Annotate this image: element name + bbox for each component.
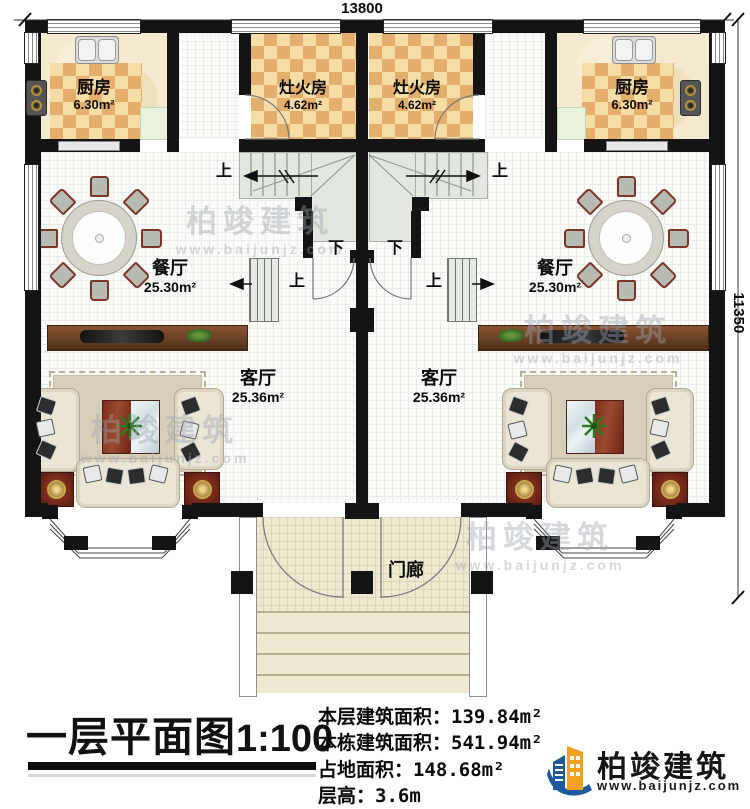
room-area-dining-left: 25.30m² xyxy=(128,280,212,295)
plant-right xyxy=(582,414,606,438)
company-logo-url: www.baijunjz.com xyxy=(597,778,741,793)
stair-down-label: 下 xyxy=(384,241,406,258)
room-label-kitchen-left: 厨房 xyxy=(57,79,131,97)
info-label: 本层建筑面积： xyxy=(318,707,451,728)
room-area-dining-right: 25.30m² xyxy=(513,280,597,295)
plan-title-text: 一层平面图 xyxy=(26,714,236,760)
stair-up-label: 上 xyxy=(213,164,235,181)
room-label-stove-right: 灶火房 xyxy=(376,81,458,98)
stair-up-label: 上 xyxy=(489,164,511,181)
stair-up-label: 上 xyxy=(423,274,445,291)
entry-arrow-right xyxy=(472,279,493,289)
info-land-area: 占地面积：148.68m² xyxy=(318,755,505,782)
room-area-kitchen-left: 6.30m² xyxy=(57,98,131,112)
info-value: 139.84m² xyxy=(451,706,543,728)
entry-arrow-left xyxy=(231,279,252,289)
room-area-kitchen-right: 6.30m² xyxy=(595,98,669,112)
logo-tower-orange xyxy=(567,746,583,790)
room-label-dining-right: 餐厅 xyxy=(515,259,595,278)
info-label: 占地面积： xyxy=(318,760,413,781)
dimension-right-label: 11350 xyxy=(730,278,746,348)
room-area-living-right: 25.36m² xyxy=(397,390,481,405)
info-value: 3.6m xyxy=(375,785,421,807)
info-value: 148.68m² xyxy=(413,759,505,781)
info-building-area: 本栋建筑面积：541.94m² xyxy=(318,728,543,755)
room-label-stove-left: 灶火房 xyxy=(262,81,344,98)
room-area-stove-left: 4.62m² xyxy=(264,99,342,112)
room-label-living-left: 客厅 xyxy=(218,369,298,388)
info-floor-height: 层高：3.6m xyxy=(318,781,421,808)
plan-title: 一层平面图1:100 xyxy=(26,703,333,763)
logo-tower-blue xyxy=(553,755,565,790)
title-underline xyxy=(28,762,316,770)
stair-up-label: 上 xyxy=(286,274,308,291)
stair-treads xyxy=(251,153,473,196)
title-underline-shadow xyxy=(28,774,316,777)
info-floor-area: 本层建筑面积：139.84m² xyxy=(318,702,543,729)
stair-down-label: 下 xyxy=(325,241,347,258)
info-label: 层高： xyxy=(318,786,375,807)
floor-plan-page: 柏竣建筑 www.baijunjz.com 柏竣建筑 www.baijunjz.… xyxy=(0,0,750,809)
room-label-dining-left: 餐厅 xyxy=(130,259,210,278)
info-label: 本栋建筑面积： xyxy=(318,733,451,754)
bay-window-posts xyxy=(42,505,682,550)
room-area-stove-right: 4.62m² xyxy=(378,99,456,112)
room-label-kitchen-right: 厨房 xyxy=(595,79,669,97)
info-value: 541.94m² xyxy=(451,732,543,754)
company-logo-icon xyxy=(547,738,593,798)
room-area-living-left: 25.36m² xyxy=(216,390,300,405)
room-label-porch: 门廊 xyxy=(366,561,446,580)
plant-left xyxy=(118,414,142,438)
dimension-top-label: 13800 xyxy=(330,1,394,17)
room-label-living-right: 客厅 xyxy=(399,369,479,388)
